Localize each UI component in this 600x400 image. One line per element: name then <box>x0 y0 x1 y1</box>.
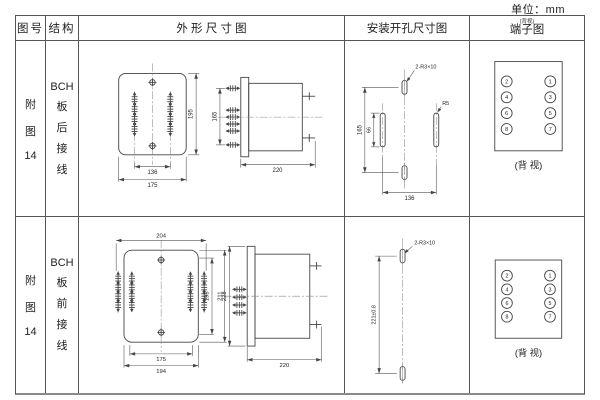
slot-length-dimension: 66 <box>366 113 379 147</box>
structure-line: 前 <box>56 295 67 311</box>
terminal-number: 8 <box>505 315 508 321</box>
dim-side-height: 228 <box>222 291 228 301</box>
terminal-number: 4 <box>505 95 508 101</box>
side-view <box>218 77 322 156</box>
terminal-number: 1 <box>548 274 551 280</box>
structure-line: 板 <box>56 274 67 290</box>
structure-line: BCH <box>50 81 73 93</box>
rear-view-caption: (背 视) <box>515 347 542 358</box>
rear-view-caption: (背 视) <box>515 160 543 171</box>
terminal-number: 1 <box>549 79 552 85</box>
mounting-slot-bottom <box>402 163 407 183</box>
fig-char: 14 <box>24 150 36 162</box>
slot-callout: 2-R3×10 <box>403 240 435 254</box>
terminal-diagram-row2: 2 4 6 8 1 3 5 7 (背 视) <box>470 217 584 393</box>
dim-top-width: 204 <box>156 234 167 240</box>
mounting-slot-top <box>400 246 405 266</box>
dim-slot-length: 66 <box>366 127 372 133</box>
fig-no-row1: 附 图 14 <box>16 41 46 217</box>
slot-label: 2-R3×10 <box>415 64 436 70</box>
front-view-dimensions: 204 195 211 175 <box>116 234 226 375</box>
terminal-circles-right: 1 3 5 7 <box>545 76 556 134</box>
terminal-slot-right <box>434 103 439 165</box>
width-dimension: 136 <box>383 157 437 202</box>
terminal-number: 3 <box>549 95 552 101</box>
header-structure: 结构 <box>46 16 79 41</box>
radius-label: R5 <box>442 101 449 107</box>
dim-depth: 220 <box>279 363 290 369</box>
dim-inner-width: 136 <box>147 170 158 176</box>
structure-line: 线 <box>56 337 67 353</box>
structure-line: 板 <box>56 98 67 114</box>
structure-row2: BCH 板 前 接 线 <box>46 217 79 393</box>
height-dimension: 221±0.8 <box>372 256 397 373</box>
dim-install-height: 165 <box>357 124 363 135</box>
fig-char: 附 <box>25 96 36 112</box>
terminal-circles-right: 1 3 5 7 <box>545 270 556 322</box>
outline-diagram-row1: 136 175 195 <box>79 41 345 217</box>
terminal-number: 5 <box>549 111 552 117</box>
terminal-slot-left <box>380 103 385 157</box>
structure-line: 接 <box>56 140 67 156</box>
fig-no-row2: 附 图 14 <box>16 217 46 393</box>
terminal-number: 3 <box>548 287 551 293</box>
dim-install-width: 136 <box>405 196 416 202</box>
dim-outer-width: 194 <box>156 369 167 375</box>
radius-callout: R5 <box>436 101 449 113</box>
structure-row1: BCH 板 后 接 线 <box>46 41 79 217</box>
terminal-number: 6 <box>505 301 508 307</box>
terminal-number: 2 <box>505 274 508 280</box>
front-view <box>115 240 207 351</box>
fig-char: 图 <box>25 123 36 139</box>
dim-height: 195 <box>189 108 195 119</box>
mounting-slot-top <box>402 77 407 97</box>
install-diagram-row2: 2-R3×10 221±0.8 <box>345 217 470 393</box>
spec-table: 图号 结构 外 形 尺 寸 图 安装开孔尺寸图 (背视) 端子图 附 图 14 … <box>15 15 585 395</box>
outline-diagram-row2: 204 195 211 175 <box>79 217 345 393</box>
height-dimension: 165 <box>357 87 398 172</box>
fig-char: 附 <box>25 272 36 288</box>
dim-inner-width: 175 <box>156 357 167 363</box>
structure-line: BCH <box>50 257 73 269</box>
fig-char: 14 <box>24 326 36 338</box>
terminal-number: 4 <box>505 287 508 293</box>
structure-line: 后 <box>56 119 67 135</box>
header-outline: 外 形 尺 寸 图 <box>79 16 345 41</box>
terminal-circles-left: 2 4 6 8 <box>502 270 513 322</box>
slot-label: 2-R3×10 <box>414 240 435 246</box>
front-view-dimensions: 136 175 195 <box>119 73 199 189</box>
terminal-number: 7 <box>549 127 552 133</box>
front-view <box>119 63 186 164</box>
dim-height-inner: 195 <box>205 291 211 302</box>
dim-install-height: 221±0.8 <box>372 305 378 324</box>
dim-depth: 220 <box>273 168 284 174</box>
terminal-number: 2 <box>505 79 508 85</box>
side-view <box>224 246 328 346</box>
terminal-diagram-row1: 2 4 6 8 1 3 5 7 (背 视) <box>470 41 584 217</box>
terminal-circles-left: 2 4 6 8 <box>501 76 512 134</box>
install-diagram-row1: 2-R3×10 165 66 <box>345 41 470 217</box>
terminal-number: 8 <box>505 127 508 133</box>
structure-line: 接 <box>56 316 67 332</box>
terminal-number: 6 <box>505 111 508 117</box>
terminal-number: 7 <box>548 315 551 321</box>
structure-line: 线 <box>56 161 67 177</box>
terminal-number: 5 <box>548 301 551 307</box>
fig-char: 图 <box>25 299 36 315</box>
terminal-block-outline <box>495 260 561 338</box>
terminal-block-outline <box>495 62 562 151</box>
header-install: 安装开孔尺寸图 <box>345 16 470 41</box>
mounting-slot-bottom <box>400 364 405 384</box>
header-terminal-label: 端子图 <box>510 24 545 36</box>
dim-terminal-span: 165 <box>212 111 218 122</box>
header-fig-no: 图号 <box>16 16 46 41</box>
slot-callout: 2-R3×10 <box>405 64 436 82</box>
header-terminal: (背视) 端子图 <box>470 16 584 41</box>
dim-outer-width: 175 <box>147 183 158 189</box>
